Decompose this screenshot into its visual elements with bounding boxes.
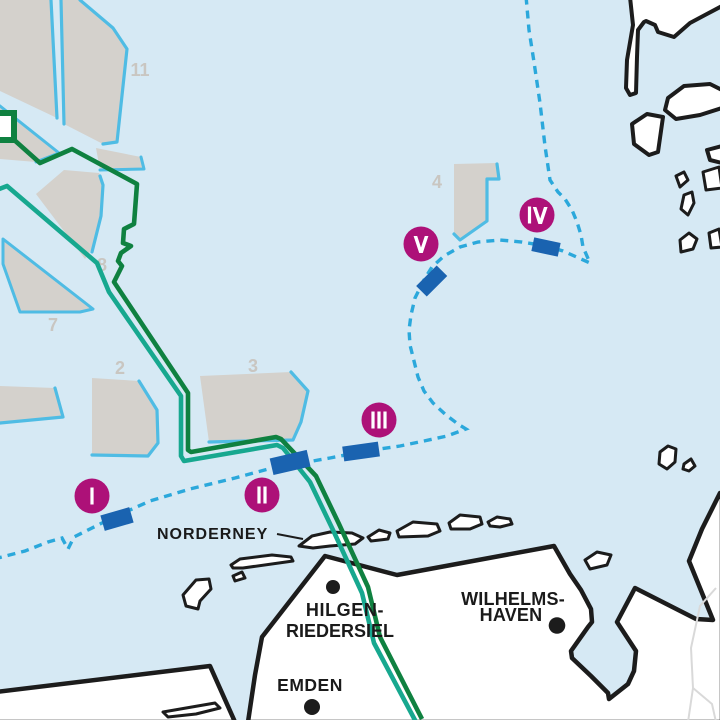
svg-text:4: 4 — [432, 172, 442, 192]
svg-text:2: 2 — [115, 358, 125, 378]
svg-text:7: 7 — [48, 315, 58, 335]
svg-text:NORDERNEY: NORDERNEY — [157, 526, 268, 543]
svg-text:HAVEN: HAVEN — [480, 605, 543, 625]
svg-text:HILGEN-: HILGEN- — [306, 600, 384, 620]
svg-text:3: 3 — [248, 356, 258, 376]
svg-text:EMDEN: EMDEN — [277, 675, 343, 695]
svg-text:RIEDERSIEL: RIEDERSIEL — [286, 621, 394, 641]
svg-text:11: 11 — [130, 60, 149, 80]
